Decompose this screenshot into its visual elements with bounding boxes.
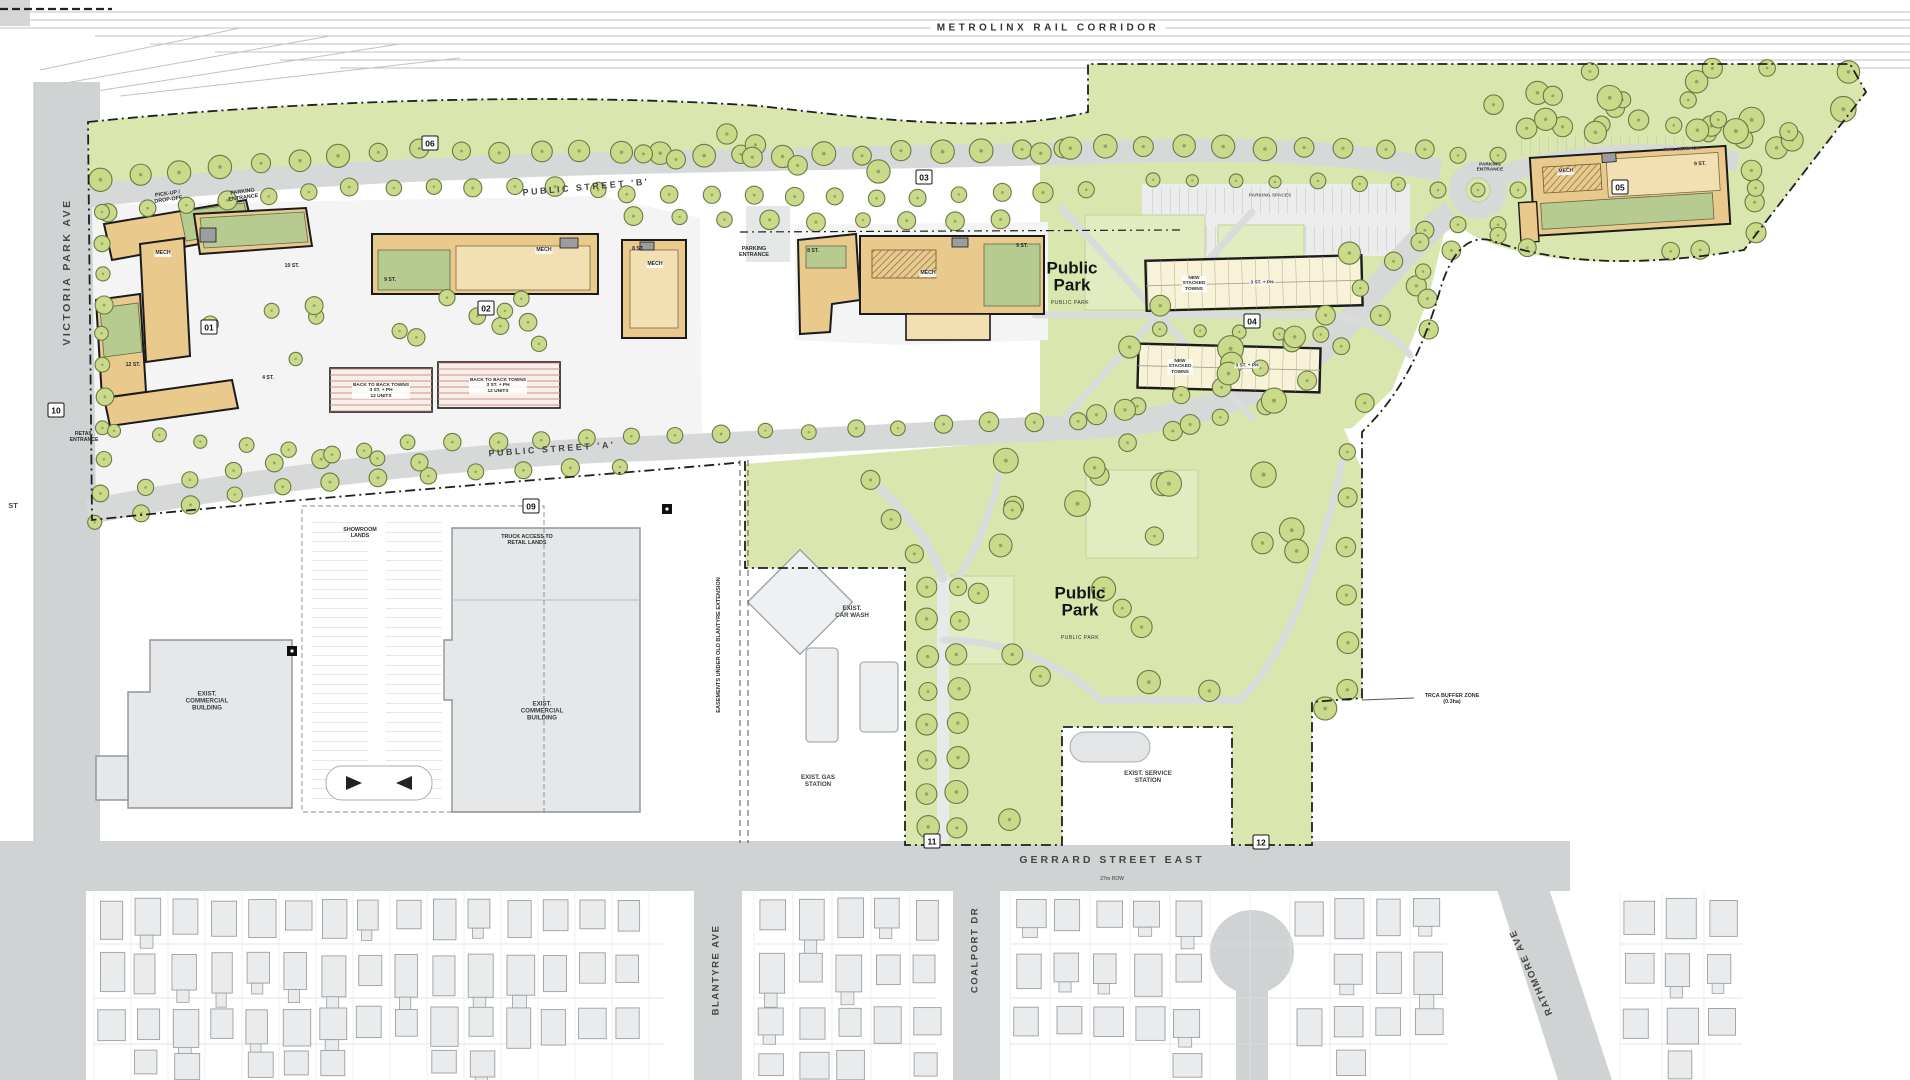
tree-icon [1336, 585, 1356, 605]
house-footprint [248, 1052, 273, 1077]
tree-icon [1152, 322, 1166, 336]
tree-icon [1253, 137, 1276, 160]
tree-icon [392, 324, 407, 339]
house-footprint [1174, 1010, 1200, 1038]
tree-icon [95, 421, 109, 435]
house-footprint [1176, 901, 1202, 937]
tree-icon [208, 155, 231, 178]
tree-icon [1013, 140, 1032, 159]
house-footprint [541, 1010, 565, 1046]
tree-icon [1450, 217, 1466, 233]
tree-icon [1114, 399, 1135, 420]
tree-icon [919, 682, 937, 700]
tree-icon [1119, 336, 1141, 358]
tree-icon [181, 496, 199, 514]
house-footprint [1420, 995, 1434, 1010]
tree-icon [275, 479, 291, 495]
house-footprint [759, 953, 784, 993]
tree-icon [945, 780, 968, 803]
house-footprint [1709, 1009, 1736, 1036]
tree-icon [868, 190, 884, 206]
tree-icon [218, 191, 237, 210]
house-footprint [1419, 926, 1432, 936]
tree-icon [96, 388, 114, 406]
tree-icon [947, 747, 969, 769]
house-footprint [1623, 1009, 1648, 1038]
tree-icon [916, 714, 937, 735]
tree-icon [133, 505, 150, 522]
house-footprint [362, 930, 372, 941]
back-to-back-towns-1 [330, 368, 432, 412]
tree-icon [1384, 252, 1402, 270]
tree-icon [265, 454, 283, 472]
tree-icon [1337, 632, 1359, 654]
tree-icon [92, 485, 109, 502]
tree-icon [321, 473, 339, 491]
house-footprint [916, 900, 938, 940]
tree-icon [1702, 58, 1722, 78]
tree-icon [1430, 182, 1446, 198]
house-footprint [1334, 954, 1362, 984]
house-footprint [322, 900, 347, 939]
house-footprint [135, 1050, 157, 1074]
tree-icon [948, 678, 970, 700]
tree-icon [742, 147, 762, 167]
tree-icon [785, 187, 803, 205]
tree-icon [178, 197, 194, 213]
house-footprint [1133, 901, 1159, 927]
tree-icon [1078, 182, 1094, 198]
tree-icon [1442, 241, 1461, 260]
house-footprint [914, 1008, 941, 1035]
tree-icon [194, 435, 207, 448]
tree-icon [703, 186, 720, 203]
tree-icon [411, 454, 428, 471]
house-footprint [1179, 1037, 1192, 1047]
house-footprint [1376, 1008, 1401, 1036]
house-footprint [513, 995, 527, 1009]
utility-marker-icon [287, 646, 297, 656]
house-footprint [98, 1010, 126, 1041]
house-footprint [1624, 901, 1655, 934]
house-footprint [470, 1051, 495, 1077]
tree-icon [1199, 680, 1220, 701]
house-footprint [1139, 927, 1152, 936]
house-footprint [135, 898, 161, 935]
tree-icon [400, 435, 415, 450]
house-footprint [284, 1051, 308, 1075]
house-footprint [800, 899, 825, 940]
house-footprint [1098, 984, 1109, 994]
house-footprint [507, 1008, 531, 1048]
site-plan: METROLINX RAIL CORRIDOR VICTORIA PARK AV… [0, 0, 1910, 1080]
tree-icon [289, 150, 311, 172]
house-footprint [579, 1008, 607, 1038]
key-plan-badge-05: 05 [1612, 180, 1629, 195]
house-footprint [1054, 900, 1079, 931]
victoria-park-road-south [0, 841, 86, 1080]
tree-icon [1518, 239, 1536, 257]
tree-icon [1310, 173, 1326, 189]
house-footprint [286, 901, 313, 930]
tree-icon [137, 479, 153, 495]
house-footprint [134, 954, 155, 994]
house-footprint [758, 1008, 783, 1035]
house-footprint [1708, 955, 1731, 984]
tree-icon [1113, 599, 1131, 617]
tree-icon [1352, 280, 1368, 296]
tree-icon [993, 448, 1018, 473]
tree-icon [1339, 444, 1355, 460]
house-footprint [1334, 1007, 1363, 1037]
lower-park-green [745, 424, 1362, 845]
tree-icon [1662, 242, 1680, 260]
tree-icon [489, 142, 510, 163]
tree-icon [167, 161, 190, 184]
house-footprint [580, 953, 606, 983]
tree-icon [946, 644, 967, 665]
tree-icon [861, 470, 880, 489]
tree-icon [1279, 518, 1304, 543]
house-footprint [508, 901, 531, 938]
tree-icon [1316, 305, 1335, 324]
key-plan-badge-12: 12 [1253, 835, 1270, 850]
tree-icon [993, 183, 1011, 201]
house-footprint [1377, 952, 1402, 993]
house-footprint [252, 983, 263, 994]
tree-icon [1746, 223, 1766, 243]
tree-icon [1030, 666, 1050, 686]
house-footprint [468, 954, 493, 997]
tree-icon [444, 433, 461, 450]
tree-icon [667, 427, 683, 443]
tree-icon [917, 577, 937, 597]
house-footprint [322, 956, 346, 997]
house-footprint [543, 956, 566, 992]
tree-icon [979, 412, 998, 431]
house-footprint [1340, 984, 1354, 995]
tree-icon [370, 451, 385, 466]
key-plan-badge-11: 11 [924, 834, 941, 849]
tree-icon [514, 291, 529, 306]
house-footprint [395, 955, 417, 998]
tree-icon [1146, 173, 1160, 187]
house-footprint [1097, 901, 1123, 927]
tree-icon [1484, 95, 1503, 114]
house-footprint [913, 955, 935, 983]
house-footprint [799, 953, 822, 982]
tree-icon [1338, 488, 1357, 507]
house-footprint [321, 1051, 345, 1076]
tree-icon [1333, 138, 1353, 158]
tree-icon [898, 212, 916, 230]
tree-icon [1173, 386, 1190, 403]
tree-icon [1156, 471, 1181, 496]
house-footprint [212, 953, 232, 993]
tree-icon [1070, 413, 1087, 430]
tree-icon [624, 207, 643, 226]
house-footprint [1176, 954, 1202, 982]
tree-icon [693, 144, 716, 167]
house-footprint [212, 901, 237, 936]
tree-icon [1338, 242, 1360, 264]
house-footprint [1094, 954, 1117, 984]
blantyre-road [694, 843, 742, 1080]
tree-icon [1059, 137, 1081, 159]
parking-island [326, 766, 432, 800]
house-footprint [1017, 900, 1046, 928]
tree-icon [139, 200, 156, 217]
house-footprint [759, 1054, 784, 1076]
tree-icon [533, 432, 550, 449]
tree-icon [660, 186, 678, 204]
rail-corner-marks [0, 0, 112, 26]
tree-icon [578, 430, 595, 447]
tree-icon [305, 297, 323, 315]
house-footprint [543, 900, 568, 931]
tree-icon [801, 425, 816, 440]
tree-icon [1628, 110, 1648, 130]
house-footprint [1017, 954, 1041, 989]
tree-icon [95, 326, 109, 340]
house-footprint [434, 899, 457, 940]
retail-parking-rows-1 [312, 516, 368, 806]
tree-icon [1391, 177, 1405, 191]
tree-icon [1418, 289, 1437, 308]
house-footprint [1014, 1007, 1039, 1036]
tree-icon [88, 515, 102, 529]
house-footprint [100, 901, 122, 939]
trca-leader-line [1362, 698, 1414, 700]
tree-icon [909, 189, 926, 206]
house-footprint [1413, 899, 1439, 927]
house-footprint [172, 955, 197, 991]
tree-icon [519, 313, 537, 331]
tree-icon [968, 583, 988, 603]
tree-icon [591, 182, 606, 197]
tree-icon [130, 164, 151, 185]
tree-icon [1133, 137, 1153, 157]
tree-icon [464, 179, 482, 197]
key-plan-badge-02: 02 [478, 301, 495, 316]
tree-icon [807, 213, 826, 232]
tree-icon [1131, 617, 1152, 638]
tree-icon [1163, 421, 1182, 440]
house-footprint [879, 928, 891, 938]
tree-icon [1741, 160, 1762, 181]
key-plan-badge-01: 01 [201, 320, 218, 335]
tree-icon [1450, 147, 1466, 163]
tree-icon [1173, 135, 1195, 157]
tree-icon [497, 303, 512, 318]
house-footprint [356, 1006, 381, 1037]
tree-icon [969, 139, 993, 163]
tree-icon [1333, 338, 1350, 355]
tree-icon [1471, 183, 1485, 197]
tree-icon [301, 184, 317, 200]
tree-icon [1212, 135, 1235, 158]
house-footprint [320, 1008, 347, 1040]
house-footprint [175, 1054, 200, 1080]
tree-icon [386, 180, 402, 196]
house-footprint [1665, 954, 1689, 987]
house-footprint [874, 1007, 901, 1044]
tree-icon [991, 210, 1010, 229]
tree-icon [1294, 138, 1314, 158]
tree-icon [618, 186, 635, 203]
tree-icon [950, 612, 969, 631]
house-footprint [173, 1010, 199, 1048]
tree-icon [1759, 60, 1776, 77]
house-footprint [1667, 1008, 1698, 1044]
tree-icon [881, 510, 901, 530]
house-footprint [140, 935, 153, 948]
house-footprint [431, 1007, 458, 1046]
tree-icon [826, 188, 843, 205]
house-footprint [1712, 983, 1724, 993]
tree-icon [568, 140, 589, 161]
tree-icon [1490, 227, 1506, 243]
house-footprint [1023, 928, 1038, 938]
house-footprint [216, 993, 226, 1007]
coalport-road [953, 843, 1000, 1080]
tree-icon [1597, 85, 1622, 110]
tree-icon [1416, 140, 1435, 159]
tree-icon [1092, 577, 1116, 601]
tree-icon [1119, 434, 1137, 452]
tree-icon [916, 608, 938, 630]
house-footprint [804, 940, 816, 954]
house-footprint [800, 1052, 829, 1079]
tree-icon [634, 145, 652, 163]
house-footprint [472, 928, 483, 938]
house-footprint [1057, 1006, 1082, 1034]
exist-commercial-2 [444, 528, 640, 812]
tree-icon [1217, 362, 1240, 385]
tree-icon [916, 784, 937, 805]
tree-icon [1285, 539, 1309, 563]
house-footprint [1710, 901, 1737, 937]
tree-icon [1269, 176, 1281, 188]
tree-icon [1194, 325, 1206, 337]
tree-icon [712, 425, 730, 443]
house-footprint [1415, 1009, 1443, 1035]
house-footprint [396, 1010, 418, 1037]
tree-icon [1212, 409, 1228, 425]
tree-icon [918, 751, 936, 769]
tree-icon [1084, 457, 1105, 478]
tree-icon [1584, 121, 1606, 143]
house-footprint [432, 1050, 457, 1073]
tree-icon [1229, 174, 1243, 188]
key-plan-badge-10: 10 [48, 403, 65, 418]
tree-icon [1411, 233, 1429, 251]
tree-icon [264, 303, 279, 318]
house-footprint [616, 955, 639, 982]
tree-icon [931, 140, 955, 164]
tree-icon [281, 442, 296, 457]
tree-icon [989, 534, 1012, 557]
tree-icon [856, 213, 871, 228]
gerrard-road [0, 841, 1570, 891]
tree-icon [905, 545, 923, 563]
house-footprint [358, 900, 379, 930]
tree-icon [1377, 140, 1395, 158]
tree-icon [935, 415, 953, 433]
tree-icon [1723, 119, 1748, 144]
house-footprint [1377, 899, 1400, 936]
tree-icon [545, 177, 565, 197]
tree-icon [1251, 462, 1276, 487]
tree-icon [1510, 182, 1526, 198]
house-footprint [397, 900, 421, 929]
site-plan-drawing [0, 0, 1910, 1080]
tree-icon [1313, 326, 1329, 342]
tree-icon [561, 459, 579, 477]
tree-icon [666, 150, 685, 169]
house-footprint [1668, 1051, 1692, 1079]
tree-icon [745, 186, 763, 204]
house-footprint [1297, 1009, 1322, 1046]
tree-icon [1581, 63, 1598, 80]
house-footprint [469, 1007, 493, 1036]
key-plan-badge-09: 09 [523, 499, 540, 514]
tree-icon [1025, 413, 1044, 432]
tree-icon [1543, 86, 1562, 105]
house-footprint [177, 990, 189, 1002]
tree-icon [812, 142, 836, 166]
tree-icon [1180, 415, 1200, 435]
house-footprint [874, 898, 899, 928]
tree-icon [1490, 147, 1506, 163]
tree-icon [324, 446, 341, 463]
tree-icon [1252, 360, 1268, 376]
tree-icon [1780, 123, 1798, 141]
retail-parking-rows-2 [386, 516, 442, 806]
tree-icon [788, 156, 808, 176]
house-footprint [765, 993, 778, 1007]
tree-icon [251, 154, 270, 173]
tree-icon [1337, 679, 1358, 700]
tree-icon [867, 160, 890, 183]
tree-icon [507, 178, 523, 194]
tree-icon [758, 423, 772, 437]
tree-icon [340, 178, 358, 196]
tree-icon [94, 236, 110, 252]
tree-icon [999, 809, 1021, 831]
tree-icon [1535, 108, 1557, 130]
house-footprint [1173, 1054, 1202, 1078]
tree-icon [717, 124, 737, 144]
house-footprint [841, 992, 854, 1005]
tree-icon [760, 210, 779, 229]
house-footprint [877, 955, 901, 985]
house-footprint [1094, 1007, 1124, 1037]
house-footprint [836, 955, 862, 992]
house-footprint [837, 1050, 865, 1079]
tree-icon [152, 428, 166, 442]
tree-icon [1298, 371, 1317, 390]
tree-icon [1030, 143, 1051, 164]
tree-icon [623, 428, 639, 444]
house-footprint [1626, 953, 1655, 983]
tree-icon [1137, 670, 1160, 693]
tree-icon [489, 433, 507, 451]
house-footprint [1666, 898, 1696, 938]
tree-icon [426, 179, 441, 194]
tree-icon [1516, 118, 1537, 139]
tree-icon [949, 578, 966, 595]
